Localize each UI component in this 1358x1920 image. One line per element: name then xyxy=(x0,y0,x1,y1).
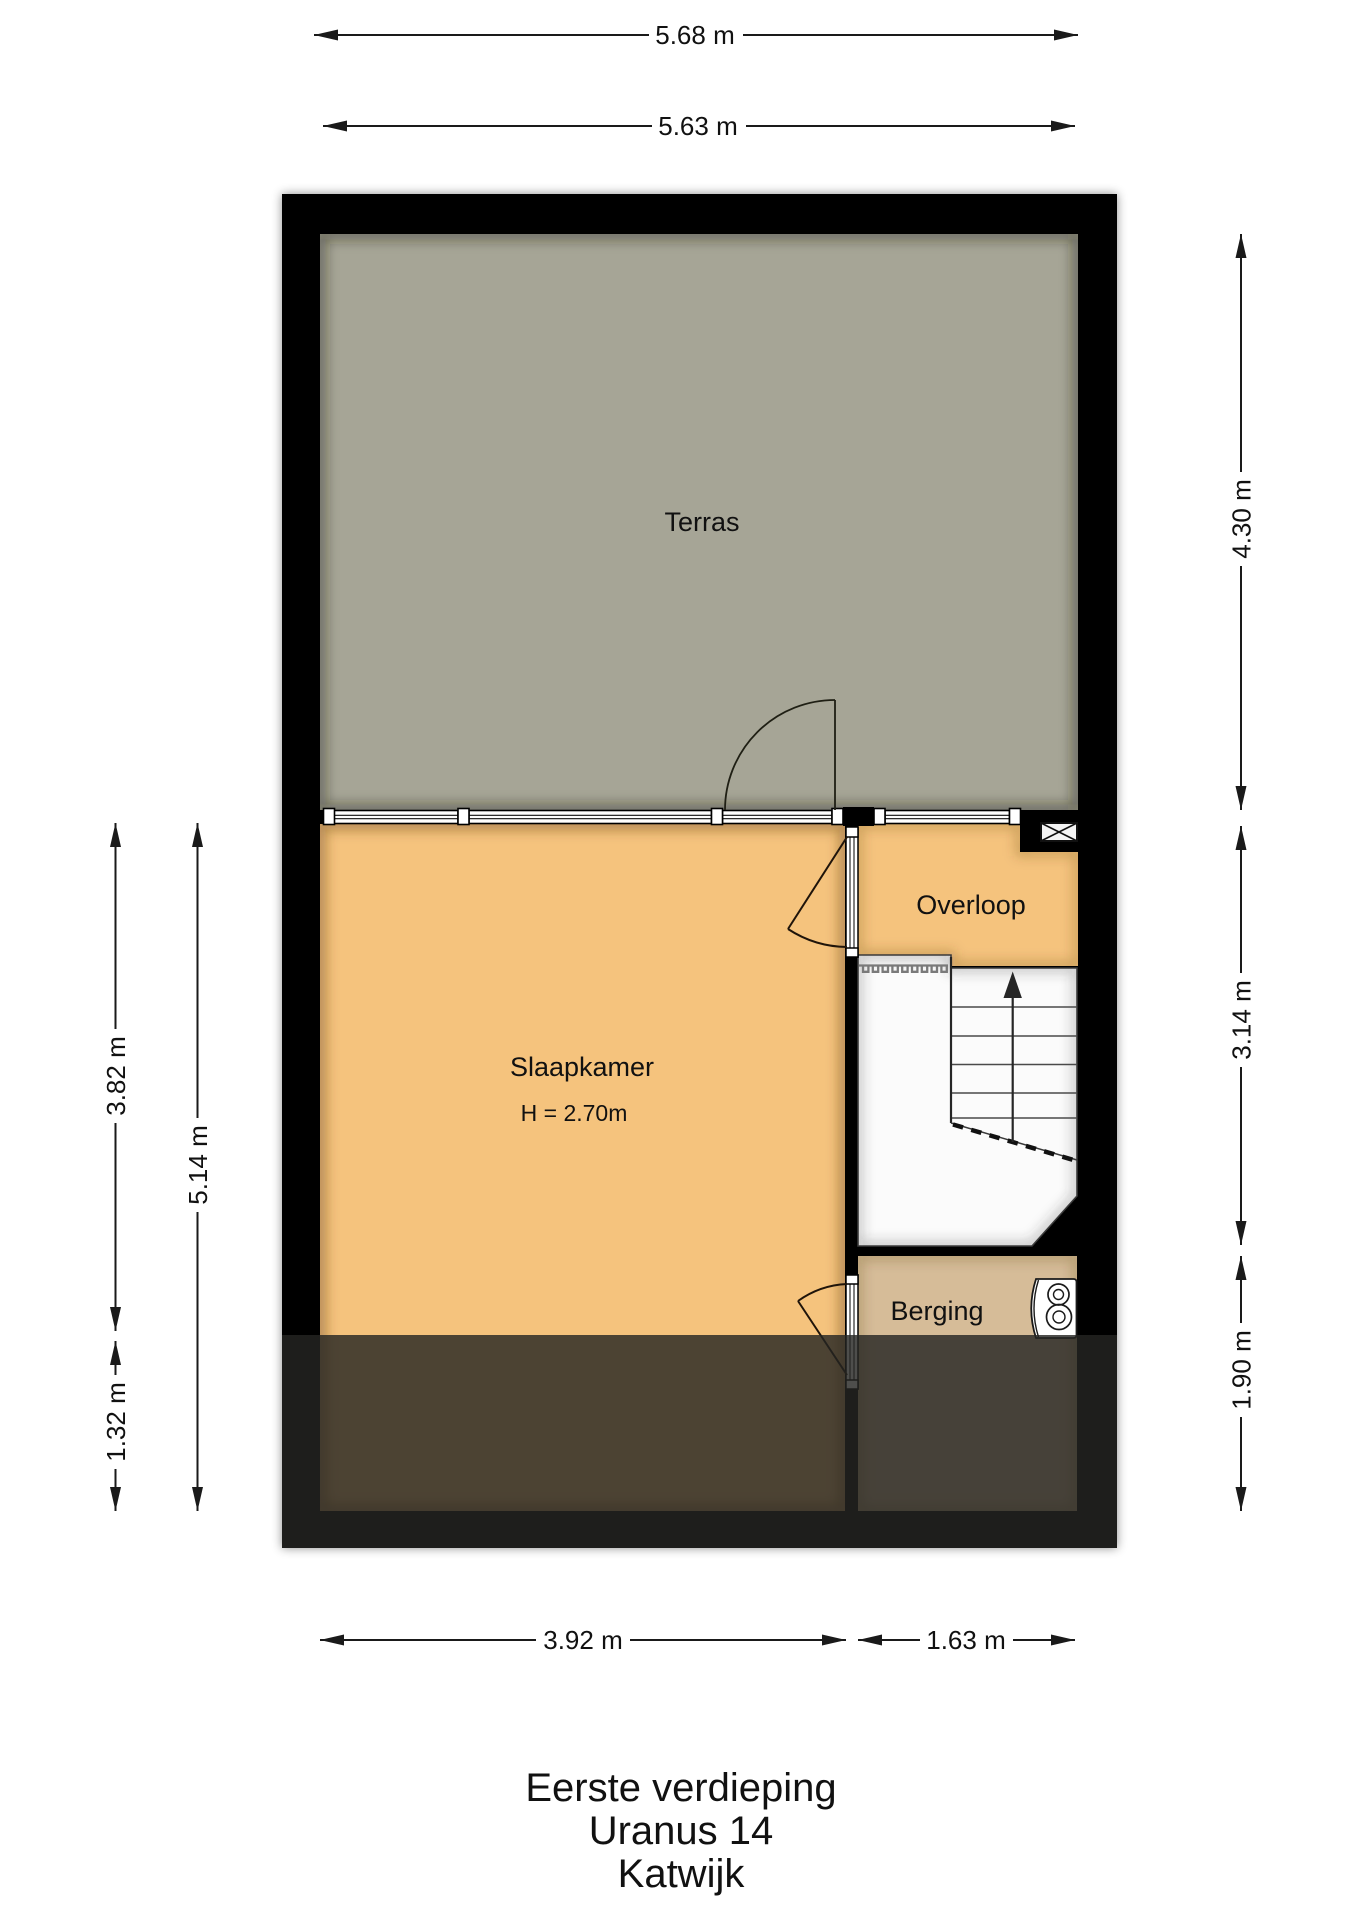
svg-text:3.92 m: 3.92 m xyxy=(543,1625,623,1655)
svg-text:H = 2.70m: H = 2.70m xyxy=(521,1100,628,1126)
svg-text:4.30 m: 4.30 m xyxy=(1227,479,1257,559)
svg-text:Eerste verdieping: Eerste verdieping xyxy=(525,1766,836,1810)
svg-text:1.63 m: 1.63 m xyxy=(926,1625,1006,1655)
svg-text:Slaapkamer: Slaapkamer xyxy=(510,1052,654,1082)
svg-text:5.68 m: 5.68 m xyxy=(655,20,735,50)
svg-text:Berging: Berging xyxy=(890,1296,983,1326)
svg-text:3.82 m: 3.82 m xyxy=(101,1036,131,1116)
svg-text:Uranus 14: Uranus 14 xyxy=(589,1809,774,1853)
svg-text:1.90 m: 1.90 m xyxy=(1227,1330,1257,1410)
svg-text:5.14 m: 5.14 m xyxy=(183,1125,213,1205)
svg-text:3.14 m: 3.14 m xyxy=(1227,980,1257,1060)
svg-text:Terras: Terras xyxy=(664,507,739,537)
svg-text:5.63 m: 5.63 m xyxy=(658,111,738,141)
svg-text:Katwijk: Katwijk xyxy=(618,1852,746,1896)
svg-text:Overloop: Overloop xyxy=(916,890,1026,920)
svg-text:1.32 m: 1.32 m xyxy=(101,1382,131,1462)
